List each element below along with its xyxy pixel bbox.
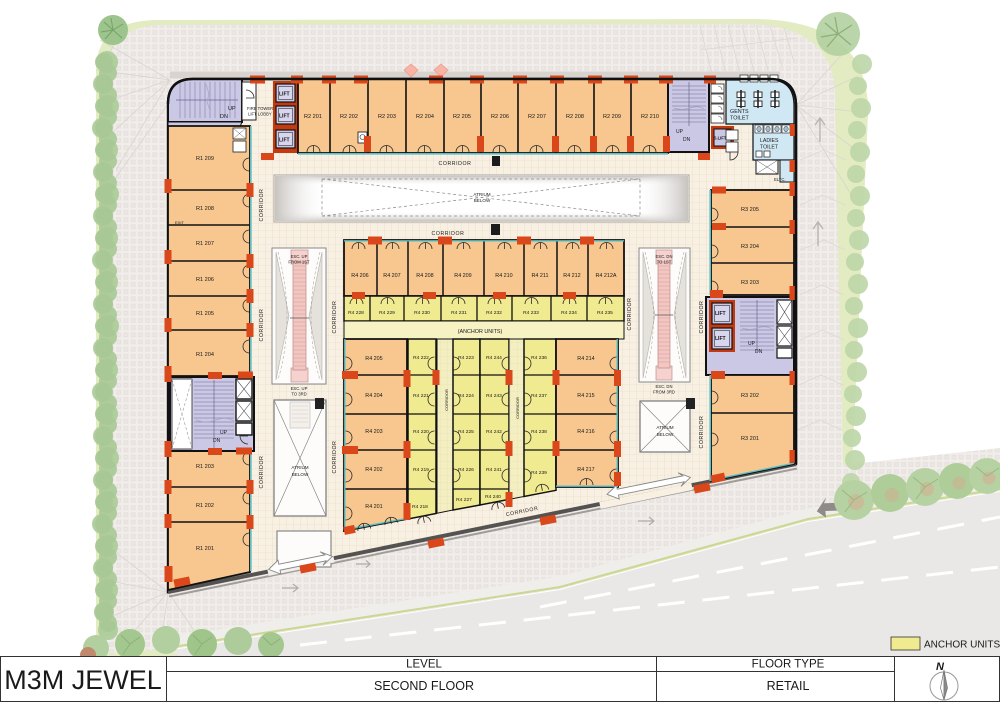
svg-text:CORRIDOR: CORRIDOR: [259, 308, 265, 341]
svg-text:(ANCHOR UNITS): (ANCHOR UNITS): [458, 329, 503, 335]
svg-text:R4 201: R4 201: [365, 504, 382, 510]
svg-text:CORRIDOR: CORRIDOR: [444, 389, 449, 411]
svg-text:FIRE TOWER: FIRE TOWER: [247, 106, 273, 111]
svg-text:CORRIDOR: CORRIDOR: [699, 415, 705, 448]
svg-text:R4 240: R4 240: [485, 494, 501, 500]
svg-text:R4 237: R4 237: [531, 393, 547, 399]
svg-text:ESC. UP: ESC. UP: [291, 386, 308, 391]
svg-text:CORRIDOR: CORRIDOR: [259, 455, 265, 488]
svg-text:BELOW: BELOW: [292, 472, 309, 477]
svg-text:EXIT: EXIT: [175, 220, 184, 225]
svg-text:R2 205: R2 205: [453, 114, 471, 120]
svg-text:R4 217: R4 217: [577, 467, 594, 473]
svg-text:R4 244: R4 244: [486, 355, 502, 361]
svg-text:R4 224: R4 224: [458, 393, 474, 399]
svg-text:R4 218: R4 218: [412, 504, 428, 510]
svg-text:R2 201: R2 201: [304, 114, 322, 120]
svg-text:DN: DN: [683, 137, 691, 143]
svg-text:R4 232: R4 232: [486, 310, 502, 316]
svg-text:R4 205: R4 205: [365, 356, 382, 362]
svg-text:TO 1ST: TO 1ST: [657, 260, 672, 265]
svg-text:R2 204: R2 204: [416, 114, 434, 120]
svg-text:R2 203: R2 203: [378, 114, 396, 120]
svg-text:CORRIDOR: CORRIDOR: [332, 300, 338, 333]
svg-text:R4 211: R4 211: [532, 273, 549, 279]
svg-text:LEVEL: LEVEL: [406, 659, 442, 671]
svg-text:R1 205: R1 205: [196, 311, 214, 317]
svg-text:R4 221: R4 221: [413, 393, 429, 399]
svg-text:R4 234: R4 234: [561, 310, 577, 316]
svg-text:R4 228: R4 228: [348, 310, 364, 316]
svg-text:CORRIDOR: CORRIDOR: [332, 440, 338, 473]
svg-text:R4 225: R4 225: [458, 429, 474, 435]
svg-text:LADIES: LADIES: [760, 138, 779, 144]
svg-text:R1 203: R1 203: [196, 464, 214, 470]
svg-text:R4 204: R4 204: [365, 393, 382, 399]
svg-text:R4 208: R4 208: [416, 273, 433, 279]
svg-text:R4 215: R4 215: [577, 393, 594, 399]
svg-text:R4 229: R4 229: [379, 310, 395, 316]
svg-text:FLOOR TYPE: FLOOR TYPE: [752, 659, 825, 671]
svg-text:CORRIDOR: CORRIDOR: [259, 188, 265, 221]
svg-text:R3 202: R3 202: [741, 393, 759, 399]
svg-text:R4 216: R4 216: [577, 429, 594, 435]
svg-text:CORRIDOR: CORRIDOR: [699, 300, 705, 333]
svg-text:R4 207: R4 207: [383, 273, 400, 279]
svg-text:SECOND FLOOR: SECOND FLOOR: [374, 679, 474, 693]
svg-text:ESC. DN: ESC. DN: [656, 254, 673, 259]
svg-text:DN: DN: [220, 114, 228, 120]
svg-text:R4 239: R4 239: [531, 470, 547, 476]
svg-text:R3 201: R3 201: [741, 436, 759, 442]
svg-text:R2 209: R2 209: [603, 114, 621, 120]
svg-text:CORRIDOR: CORRIDOR: [627, 297, 633, 330]
svg-text:R4 219: R4 219: [413, 467, 429, 473]
svg-text:TOILET: TOILET: [730, 116, 749, 122]
svg-text:R4 230: R4 230: [414, 310, 430, 316]
svg-text:DN: DN: [755, 349, 763, 355]
svg-text:ELTC.: ELTC.: [774, 177, 786, 182]
svg-text:ESC. UP: ESC. UP: [291, 254, 308, 259]
svg-text:R3 204: R3 204: [741, 244, 759, 250]
svg-text:R4 238: R4 238: [531, 429, 547, 435]
svg-text:R4 242: R4 242: [486, 429, 502, 435]
svg-text:R4 235: R4 235: [597, 310, 613, 316]
svg-text:R2 207: R2 207: [528, 114, 546, 120]
svg-text:LIFT: LIFT: [279, 92, 290, 98]
svg-text:R4 231: R4 231: [451, 310, 467, 316]
svg-text:FROM 3RD: FROM 3RD: [653, 390, 675, 395]
svg-text:LIFT: LIFT: [279, 138, 290, 144]
svg-text:LIFT: LIFT: [279, 114, 290, 120]
svg-text:R4 241: R4 241: [486, 467, 502, 473]
svg-text:DN: DN: [213, 438, 221, 444]
svg-text:ATRIUM: ATRIUM: [656, 425, 673, 430]
svg-text:R3 205: R3 205: [741, 207, 759, 213]
svg-text:R4 212: R4 212: [563, 273, 580, 279]
svg-text:UP: UP: [676, 129, 684, 135]
svg-text:R4 212A: R4 212A: [596, 273, 617, 279]
svg-text:R1 206: R1 206: [196, 277, 214, 283]
svg-text:ATRIUM: ATRIUM: [473, 192, 490, 197]
svg-text:R4 206: R4 206: [351, 273, 368, 279]
svg-text:FROM 1ST: FROM 1ST: [288, 260, 310, 265]
svg-text:RETAIL: RETAIL: [767, 679, 810, 693]
svg-text:CORRIDOR: CORRIDOR: [515, 397, 520, 419]
svg-text:R1 204: R1 204: [196, 352, 214, 358]
svg-text:R4 209: R4 209: [454, 273, 471, 279]
svg-text:BELOW: BELOW: [474, 198, 491, 203]
svg-text:R2 202: R2 202: [340, 114, 358, 120]
svg-text:R1 209: R1 209: [196, 156, 214, 162]
svg-text:R4 202: R4 202: [365, 467, 382, 473]
svg-text:R4 214: R4 214: [577, 356, 594, 362]
svg-text:UP: UP: [220, 430, 228, 436]
svg-text:R3 203: R3 203: [741, 280, 759, 286]
svg-text:R4 226: R4 226: [458, 467, 474, 473]
svg-text:R4 233: R4 233: [523, 310, 539, 316]
svg-text:ESC. DN: ESC. DN: [656, 384, 673, 389]
svg-text:R2 210: R2 210: [641, 114, 659, 120]
svg-text:ANCHOR UNITS: ANCHOR UNITS: [924, 640, 1000, 651]
svg-text:R2 208: R2 208: [566, 114, 584, 120]
svg-text:R2 206: R2 206: [491, 114, 509, 120]
svg-text:R1 208: R1 208: [196, 206, 214, 212]
svg-text:R4 223: R4 223: [458, 355, 474, 361]
svg-text:R4 222: R4 222: [413, 355, 429, 361]
svg-text:LIFT: LIFT: [715, 311, 726, 317]
svg-text:R4 236: R4 236: [531, 355, 547, 361]
svg-text:LIFT: LIFT: [715, 336, 726, 342]
svg-text:CORRIDOR: CORRIDOR: [438, 161, 471, 167]
svg-text:R4 220: R4 220: [413, 429, 429, 435]
svg-text:R4 203: R4 203: [365, 429, 382, 435]
svg-text:CORRIDOR: CORRIDOR: [431, 231, 464, 237]
svg-text:UP: UP: [748, 341, 756, 347]
svg-text:N: N: [936, 661, 945, 673]
svg-text:S.LIFT: S.LIFT: [714, 136, 727, 141]
svg-text:LIFT LOBBY: LIFT LOBBY: [248, 112, 272, 117]
svg-text:R1 202: R1 202: [196, 503, 214, 509]
svg-text:M3M JEWEL: M3M JEWEL: [4, 665, 162, 695]
svg-text:UP: UP: [228, 106, 236, 112]
svg-text:R4 243: R4 243: [486, 393, 502, 399]
svg-text:TOILET: TOILET: [760, 145, 779, 151]
svg-text:BELOW: BELOW: [657, 432, 674, 437]
svg-text:R4 210: R4 210: [495, 273, 512, 279]
svg-text:R4 227: R4 227: [456, 497, 472, 503]
svg-text:R1 207: R1 207: [196, 241, 214, 247]
svg-text:ATRIUM: ATRIUM: [291, 465, 308, 470]
svg-text:R1 201: R1 201: [196, 546, 214, 552]
svg-text:TO 3RD: TO 3RD: [291, 392, 306, 397]
svg-text:GENTS: GENTS: [730, 109, 749, 115]
